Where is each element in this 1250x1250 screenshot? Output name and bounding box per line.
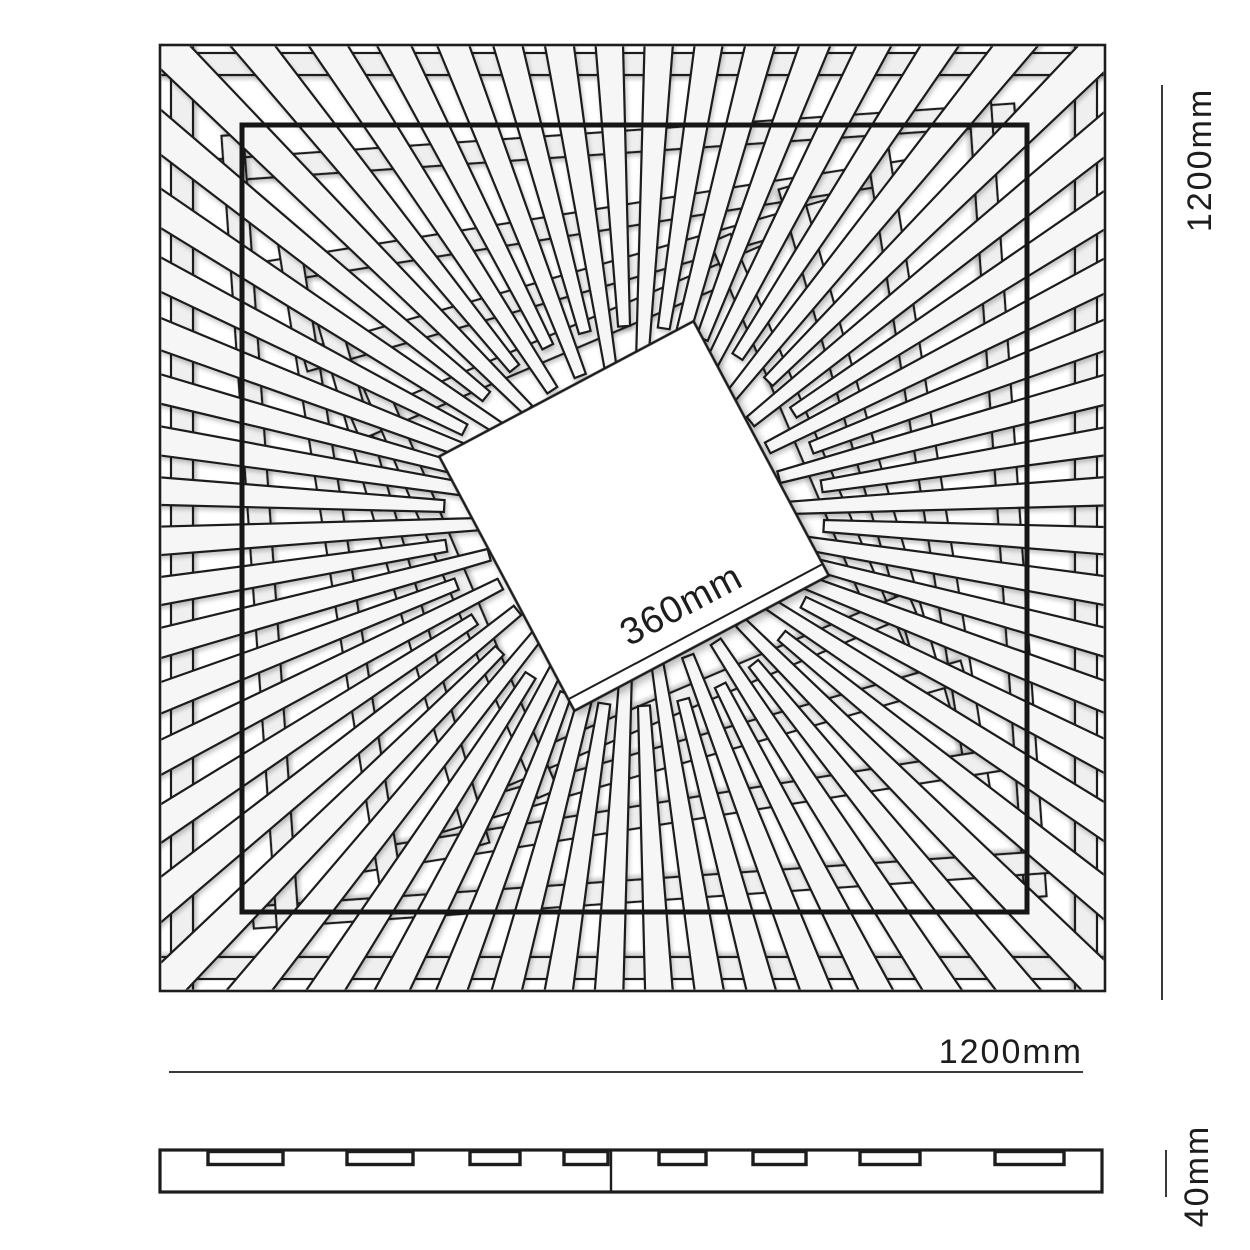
profile-notch [470,1152,520,1165]
thickness-dimension-label: 40mm [1178,1125,1216,1227]
profile-notch [659,1152,706,1165]
height-dimension-label: 1200mm [1181,88,1219,232]
profile-notch [564,1152,608,1165]
profile-notch [860,1152,920,1165]
profile-notch [347,1152,413,1165]
technical-drawing: 360mm 1200mm 1200mm 40mm [0,0,1250,1250]
profile-outline [160,1150,1102,1192]
profile-notch [753,1152,806,1165]
profile-notch [208,1152,283,1165]
width-dimension-label: 1200mm [939,1033,1083,1071]
profile-notch [995,1152,1064,1165]
drawing-page: 360mm 1200mm 1200mm 40mm [0,0,1250,1250]
side-profile-view [160,1150,1102,1192]
